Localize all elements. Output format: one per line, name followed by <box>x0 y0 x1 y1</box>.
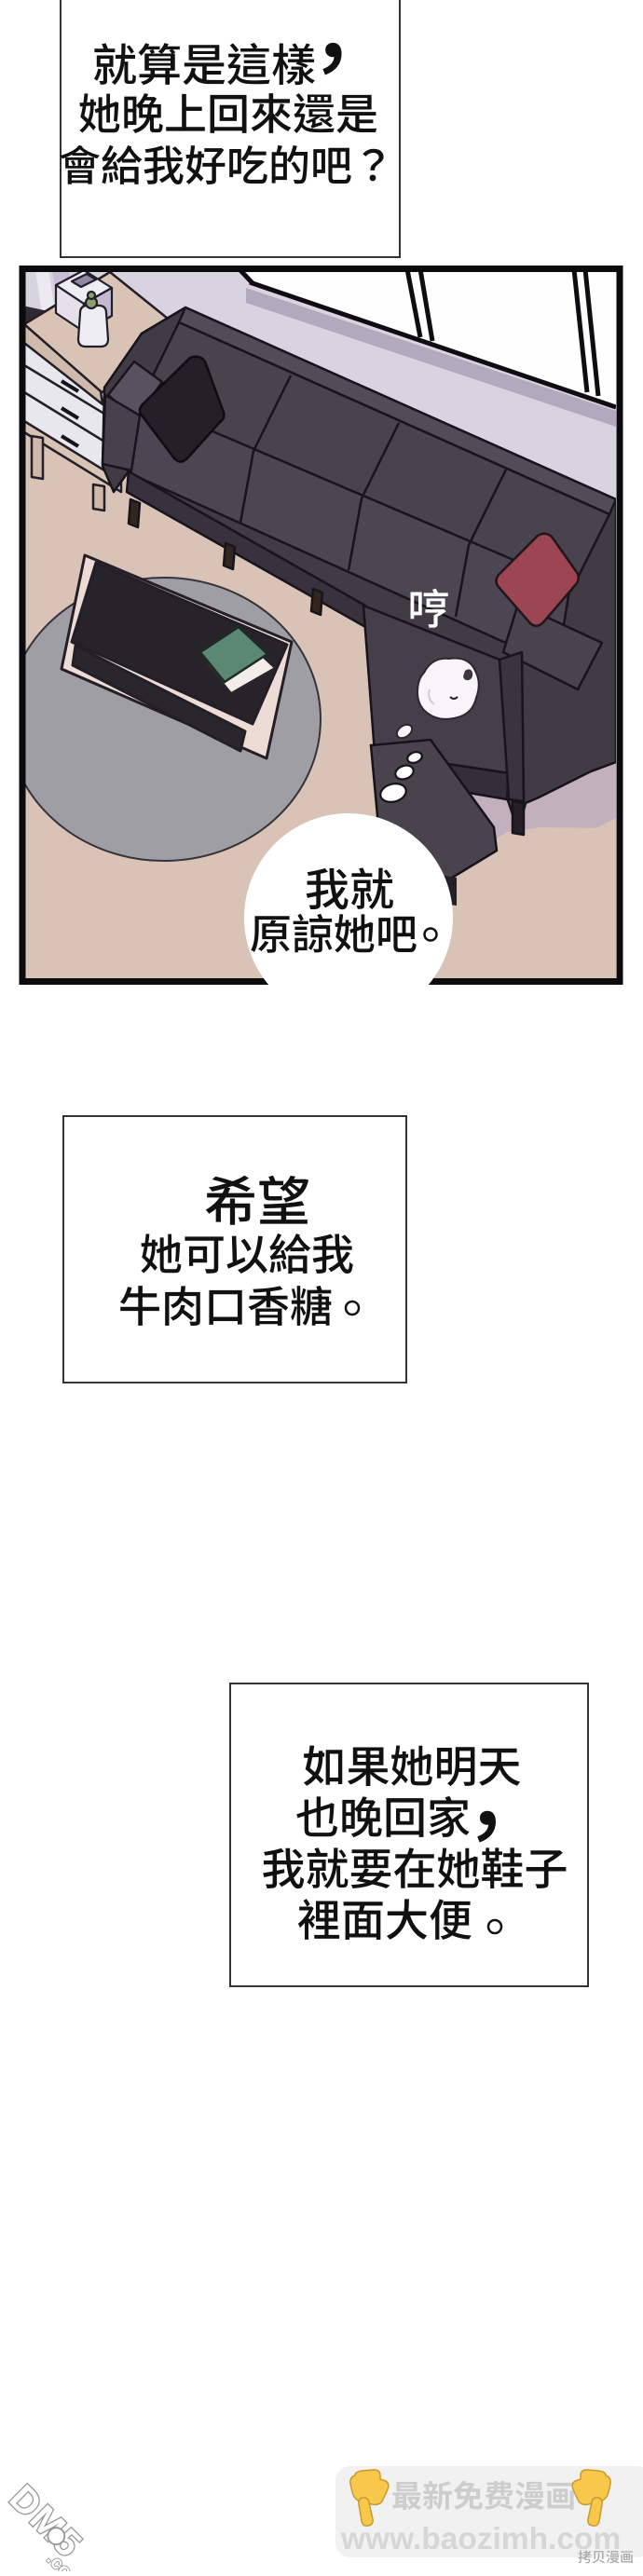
svg-text:www.baozimh.com: www.baozimh.com <box>340 2522 621 2556</box>
